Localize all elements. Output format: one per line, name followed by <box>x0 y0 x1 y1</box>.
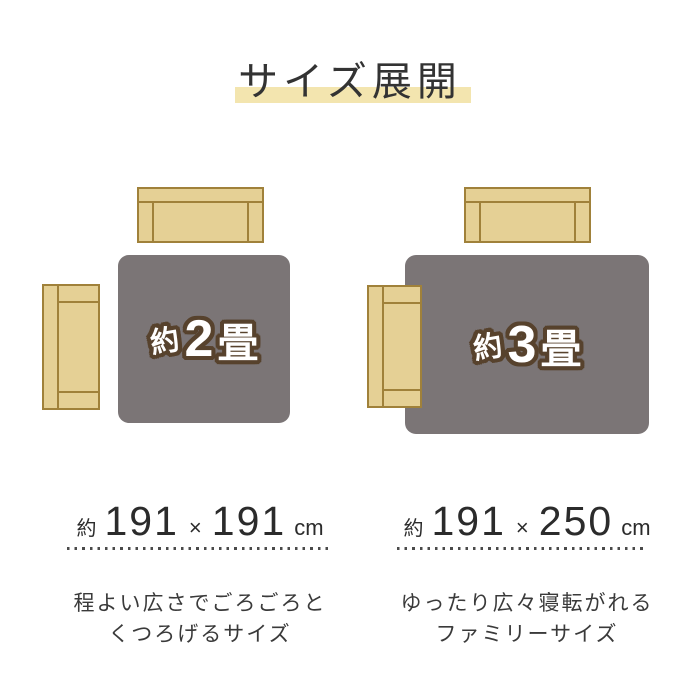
times-sign: × <box>189 515 202 541</box>
times-sign: × <box>516 515 529 541</box>
description-3jo: ゆったり広々寝転がれる ファミリーサイズ <box>377 588 677 650</box>
dotted-divider <box>397 547 643 550</box>
sofa-armrest-left <box>466 203 481 241</box>
rug-3jo: 約 3 畳 <box>405 255 649 434</box>
sofa-backrest <box>369 287 384 406</box>
description-line-1: ゆったり広々寝転がれる <box>377 588 677 619</box>
size-lineup-infographic: サイズ展開 約 2 畳 約 191 × 191 cm 程よ <box>0 0 700 700</box>
size-width: 191 <box>431 498 505 545</box>
sofa-seat-middle <box>384 304 420 389</box>
rug-size-label-3jo: 約 3 畳 <box>473 315 582 375</box>
rug-label-number: 2 <box>185 313 214 365</box>
sofa-armrest-right <box>574 203 589 241</box>
sofa-backrest <box>139 189 262 203</box>
sofa-armrest-right <box>247 203 262 241</box>
page-title-text: サイズ展開 <box>238 60 462 104</box>
size-prefix: 約 <box>403 512 423 541</box>
rug-label-prefix: 約 <box>469 321 505 367</box>
size-unit: cm <box>294 515 323 541</box>
sofa-armrest-top <box>59 286 98 303</box>
sofa-seat <box>139 203 262 241</box>
size-text-3jo: 約 191 × 250 cm <box>377 498 677 545</box>
size-length: 191 <box>212 498 286 545</box>
description-line-2: ファミリーサイズ <box>377 619 677 650</box>
rug-label-prefix: 約 <box>146 316 182 362</box>
sofa-horizontal-icon <box>137 187 264 243</box>
sofa-vertical-icon <box>42 284 100 410</box>
sofa-seat-middle <box>481 203 574 241</box>
rug-size-label-2jo: 約 2 畳 <box>150 309 259 369</box>
dotted-divider <box>67 547 330 550</box>
sofa-armrest-bottom <box>59 391 98 408</box>
size-length: 250 <box>539 498 613 545</box>
page-title: サイズ展開 <box>238 62 462 103</box>
title-row: サイズ展開 <box>0 62 700 103</box>
rug-2jo: 約 2 畳 <box>118 255 290 423</box>
size-width: 191 <box>104 498 178 545</box>
sofa-vertical-icon <box>367 285 422 408</box>
sofa-horizontal-icon <box>464 187 591 243</box>
description-line-1: 程よい広さでごろごろと <box>40 588 360 619</box>
rug-label-unit: 畳 <box>217 309 258 369</box>
description-2jo: 程よい広さでごろごろと くつろげるサイズ <box>40 588 360 650</box>
sofa-backrest <box>44 286 59 408</box>
sofa-seat <box>466 203 589 241</box>
rug-label-number: 3 <box>508 319 537 371</box>
sofa-seat-middle <box>154 203 247 241</box>
size-text-2jo: 約 191 × 191 cm <box>40 498 360 545</box>
sofa-armrest-top <box>384 287 420 304</box>
sofa-seat-middle <box>59 303 98 391</box>
description-line-2: くつろげるサイズ <box>40 619 360 650</box>
sofa-seat <box>384 287 420 406</box>
sofa-backrest <box>466 189 589 203</box>
size-unit: cm <box>621 515 650 541</box>
sofa-armrest-bottom <box>384 389 420 406</box>
size-prefix: 約 <box>76 512 96 541</box>
sofa-seat <box>59 286 98 408</box>
sofa-armrest-left <box>139 203 154 241</box>
rug-label-unit: 畳 <box>540 315 581 375</box>
